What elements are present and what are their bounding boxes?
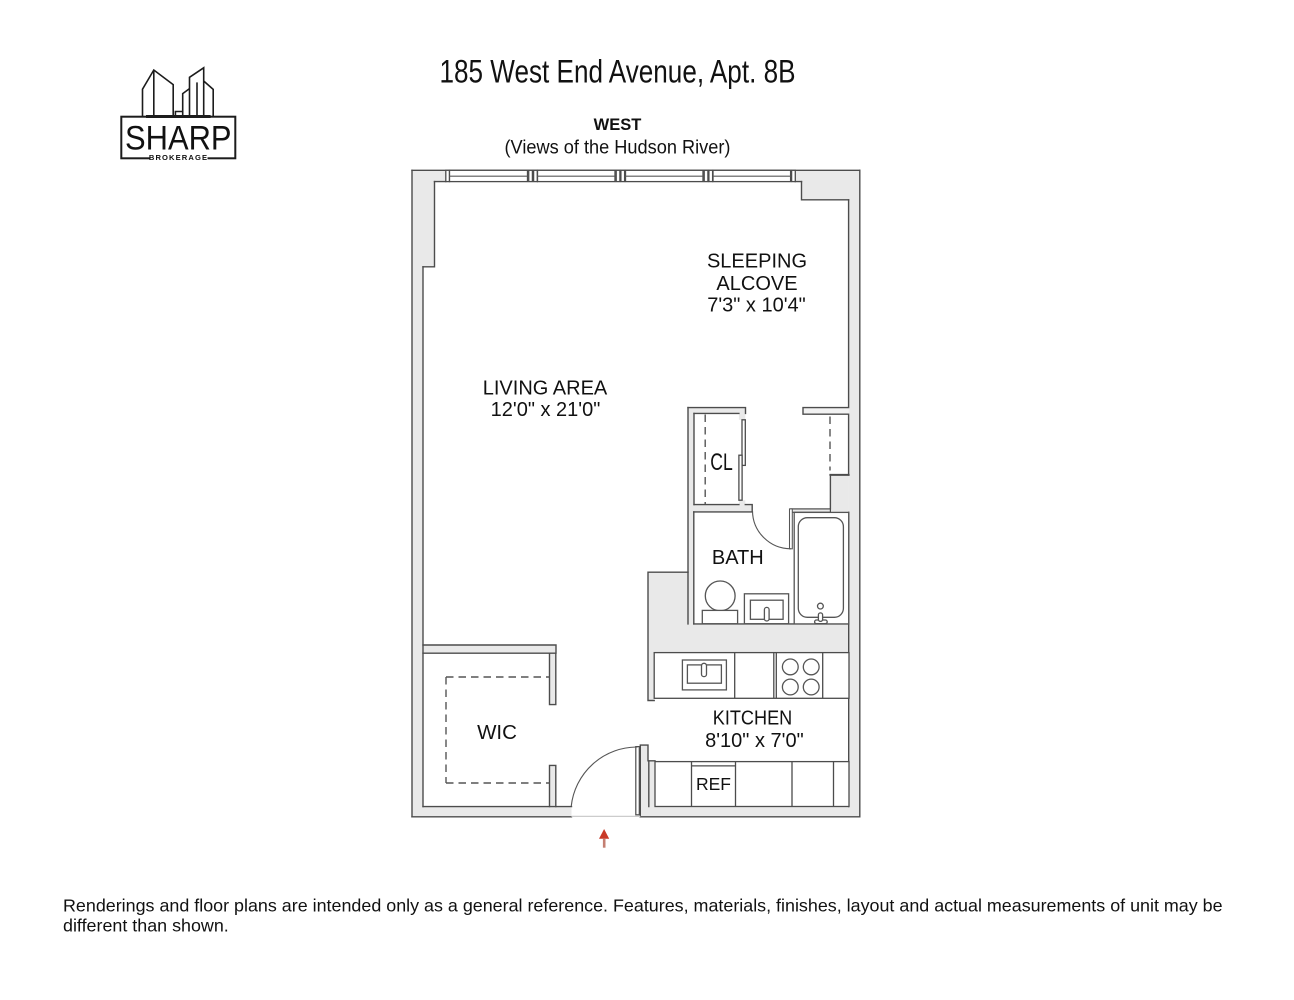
svg-text:REF: REF [696, 774, 731, 794]
svg-text:12'0" x 21'0": 12'0" x 21'0" [491, 399, 601, 421]
svg-text:SLEEPING: SLEEPING [707, 251, 807, 273]
svg-text:ALCOVE: ALCOVE [716, 273, 797, 295]
svg-text:8'10" x 7'0": 8'10" x 7'0" [705, 730, 804, 752]
svg-text:BROKERAGE: BROKERAGE [149, 153, 208, 162]
svg-text:(Views of the Hudson River): (Views of the Hudson River) [505, 137, 731, 159]
svg-text:7'3" x 10'4": 7'3" x 10'4" [707, 294, 806, 316]
svg-text:WIC: WIC [477, 721, 517, 744]
svg-text:Renderings and floor plans are: Renderings and floor plans are intended … [63, 896, 1223, 916]
svg-text:185 West End Avenue, Apt. 8B: 185 West End Avenue, Apt. 8B [440, 53, 796, 89]
svg-text:WEST: WEST [594, 116, 642, 134]
svg-text:BATH: BATH [712, 547, 764, 569]
svg-text:CL: CL [710, 449, 733, 476]
svg-text:different than shown.: different than shown. [63, 916, 229, 936]
svg-text:KITCHEN: KITCHEN [713, 708, 793, 730]
svg-text:LIVING AREA: LIVING AREA [483, 377, 608, 399]
